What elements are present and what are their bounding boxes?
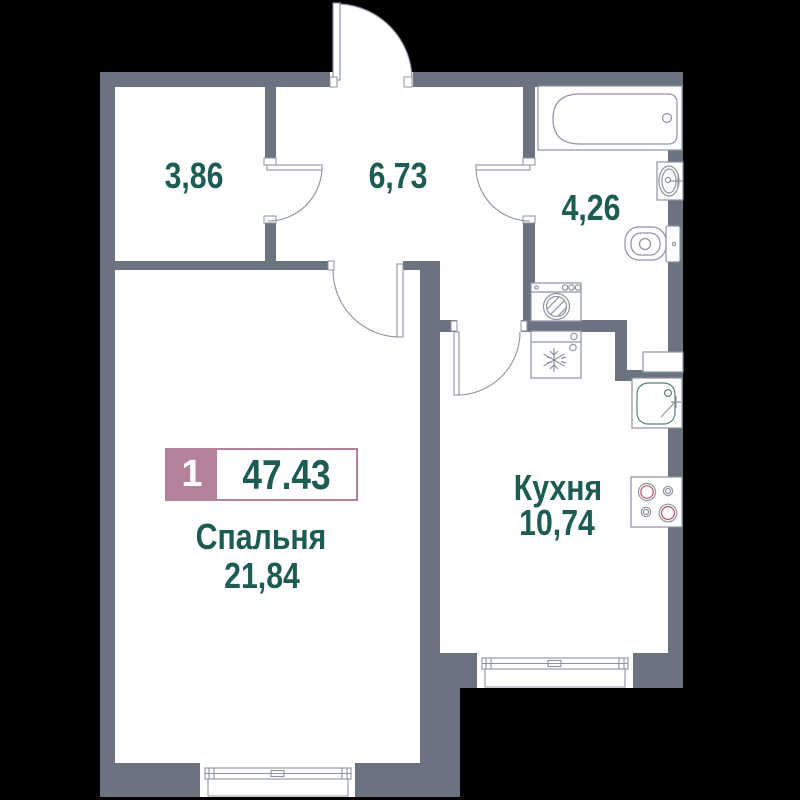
bedroom-area-label: 21,84 — [224, 555, 300, 597]
door-leaf — [333, 3, 340, 80]
door-leaf — [267, 165, 322, 170]
jamb — [264, 158, 276, 165]
refrigerator-icon — [531, 331, 581, 378]
kitchen-sink-icon — [632, 378, 682, 428]
floor-plan-drawing — [0, 0, 800, 800]
jamb — [521, 321, 527, 331]
bedroom-window-icon — [200, 763, 355, 797]
hallway-area-label: 6,73 — [369, 155, 428, 197]
cabinet-icon — [643, 352, 683, 372]
wall — [355, 763, 460, 797]
door-leaf — [476, 165, 530, 170]
jamb — [328, 261, 334, 270]
wall — [420, 261, 440, 763]
wall — [100, 72, 330, 87]
entrance-door — [333, 3, 412, 80]
wall — [440, 653, 477, 688]
jamb — [523, 216, 535, 223]
washing-machine-icon — [531, 283, 581, 325]
toilet-icon — [625, 226, 680, 262]
bedroom-name-label: Спальня — [196, 516, 327, 558]
wall — [100, 261, 328, 270]
floor-plan: 3,86 6,73 4,26 Кухня 10,74 Спальня 21,84… — [0, 0, 800, 800]
jamb — [404, 77, 412, 87]
washbasin-icon — [657, 162, 683, 200]
door-leaf — [454, 332, 459, 395]
bathtub-icon — [538, 86, 682, 150]
wall — [440, 688, 460, 763]
room-count-badge: 1 — [167, 450, 217, 499]
apartment-badge: 1 47.43 — [165, 448, 358, 501]
jamb — [451, 321, 457, 331]
jamb — [523, 158, 535, 165]
wall — [265, 87, 276, 158]
wall — [521, 320, 627, 332]
jamb — [330, 77, 337, 87]
bathroom-area-label: 4,26 — [562, 187, 621, 229]
wall — [413, 72, 683, 87]
door-leaf — [397, 264, 403, 337]
wall — [100, 763, 200, 797]
jamb — [264, 216, 276, 223]
wall — [633, 653, 683, 688]
storage-area-label: 3,86 — [165, 155, 224, 197]
kitchen-window-icon — [477, 653, 633, 688]
total-area-label: 47.43 — [228, 450, 345, 499]
cooktop-icon — [631, 477, 682, 527]
wall — [523, 87, 535, 158]
kitchen-area-label: 10,74 — [519, 502, 595, 544]
wall — [100, 72, 115, 797]
